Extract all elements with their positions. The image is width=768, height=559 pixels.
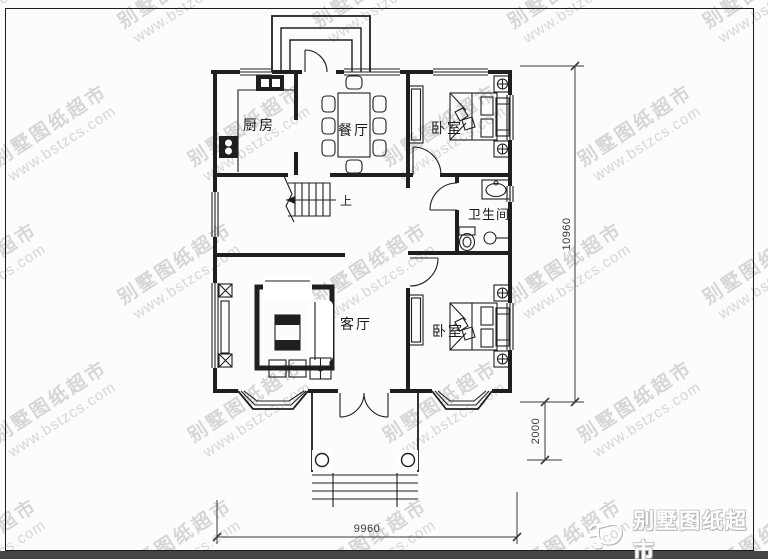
bedroom-top-door [413,147,441,175]
stairs-up-label: 上 [340,194,352,208]
dimension-bottom-total: 9960 [354,523,380,535]
living-label: 客厅 [340,316,372,332]
coffee-table [275,315,300,350]
bedroom-bottom: 卧室 [409,285,511,367]
kitchen-label: 厨房 [243,117,275,133]
living-window-piers [219,284,232,367]
floorplan-page: 别墅图纸超市www.bstzcs.com别墅图纸超市www.bstzcs.com… [0,0,768,559]
dining-label: 餐厅 [338,122,370,138]
bedroom-bottom-door [410,258,438,286]
interior-doors [410,147,457,286]
cart-icon [588,518,625,552]
site-logo-text: 别墅图纸超市 [633,505,768,559]
dimension-right-porch: 2000 [530,418,542,444]
floorplan-drawing: 上 厨房 餐厅 [0,0,768,559]
bathroom-door [430,183,457,210]
bedroom-top: 卧室 [409,76,511,157]
bedroom-bottom-label: 卧室 [432,323,464,339]
bedroom-top-label: 卧室 [431,120,463,136]
entry-double-door [340,393,388,417]
kitchen: 厨房 [219,75,296,172]
site-logo: 别墅图纸超市 [588,505,768,559]
stove-icon [219,136,238,158]
entry-porch [312,393,418,507]
stairs: 上 [284,176,352,222]
bathroom: 卫生间 [459,180,510,251]
toilet-icon [459,227,475,251]
chaise-sofa [309,300,333,362]
dimension-right-total: 10960 [561,217,573,250]
sofa [263,274,312,300]
floor-drain-icon [484,232,496,244]
living-room: 客厅 [257,274,372,379]
dining-room: 餐厅 [322,76,386,173]
rear-canopy-steps [272,16,370,72]
dimension-lines: 10960 2000 9960 [213,62,584,544]
bathroom-label: 卫生间 [468,207,510,222]
entry-steps [312,473,418,507]
